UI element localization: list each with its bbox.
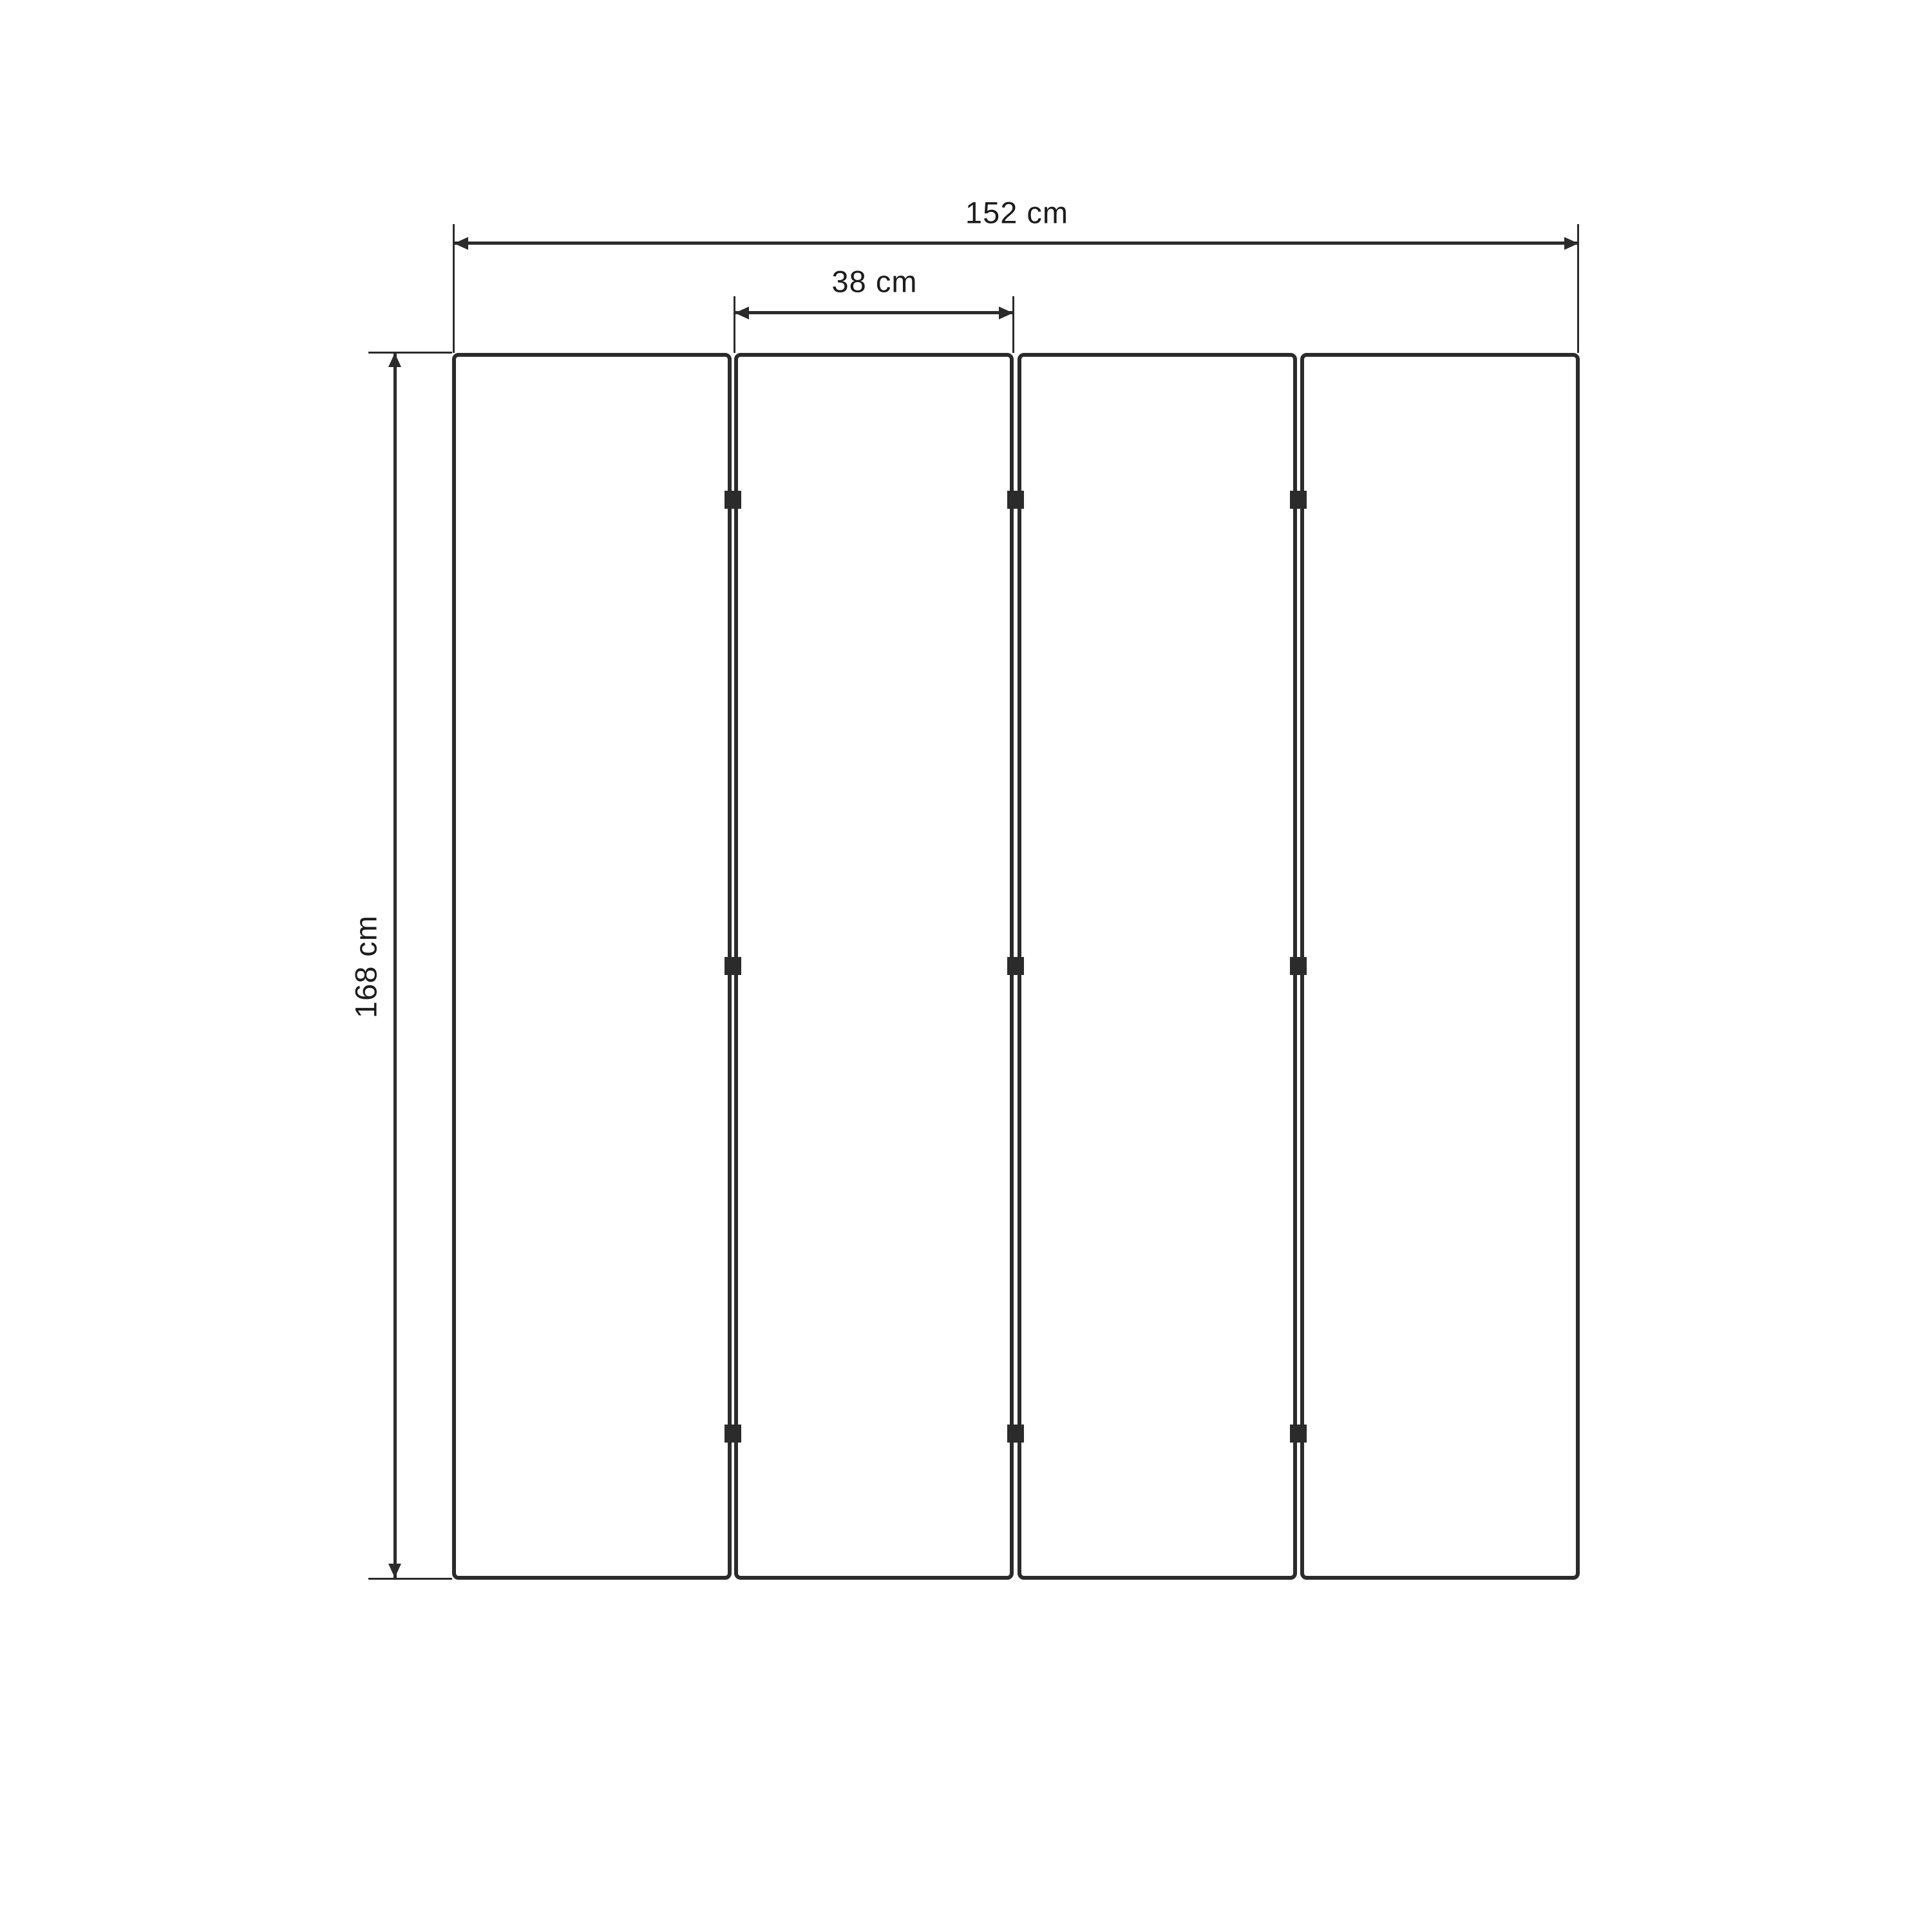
- total-width-label: 152 cm: [965, 195, 1068, 231]
- hinge: [1007, 491, 1024, 509]
- dimension-diagram: 152 cm 38 cm 168 cm: [0, 0, 1932, 1932]
- hinge: [1007, 957, 1024, 975]
- hinge: [1290, 491, 1307, 509]
- panel-1: [452, 353, 732, 1580]
- panel-width-dimension-line: [735, 311, 1013, 314]
- arrowhead-left-icon: [735, 307, 749, 319]
- hinge: [1007, 1425, 1024, 1443]
- extension-line-panel-width-left: [734, 296, 735, 353]
- total-width-dimension-line: [454, 241, 1578, 245]
- panel-2: [734, 353, 1014, 1580]
- hinge: [1290, 1425, 1307, 1443]
- arrowhead-right-icon: [999, 307, 1013, 319]
- arrowhead-left-icon: [454, 237, 468, 250]
- arrowhead-up-icon: [388, 353, 401, 367]
- hinge: [724, 957, 741, 975]
- arrowhead-down-icon: [388, 1564, 401, 1578]
- hinge: [724, 491, 741, 509]
- arrowhead-right-icon: [1564, 237, 1578, 250]
- hinge: [1290, 957, 1307, 975]
- height-label: 168 cm: [348, 915, 384, 1018]
- extension-line-height-top: [368, 352, 452, 354]
- height-dimension-line: [393, 353, 397, 1578]
- panel-width-label: 38 cm: [832, 264, 918, 299]
- extension-line-height-bottom: [368, 1578, 452, 1580]
- hinge: [724, 1425, 741, 1443]
- panel-4: [1300, 353, 1580, 1580]
- panel-3: [1018, 353, 1297, 1580]
- extension-line-panel-width-right: [1012, 296, 1014, 353]
